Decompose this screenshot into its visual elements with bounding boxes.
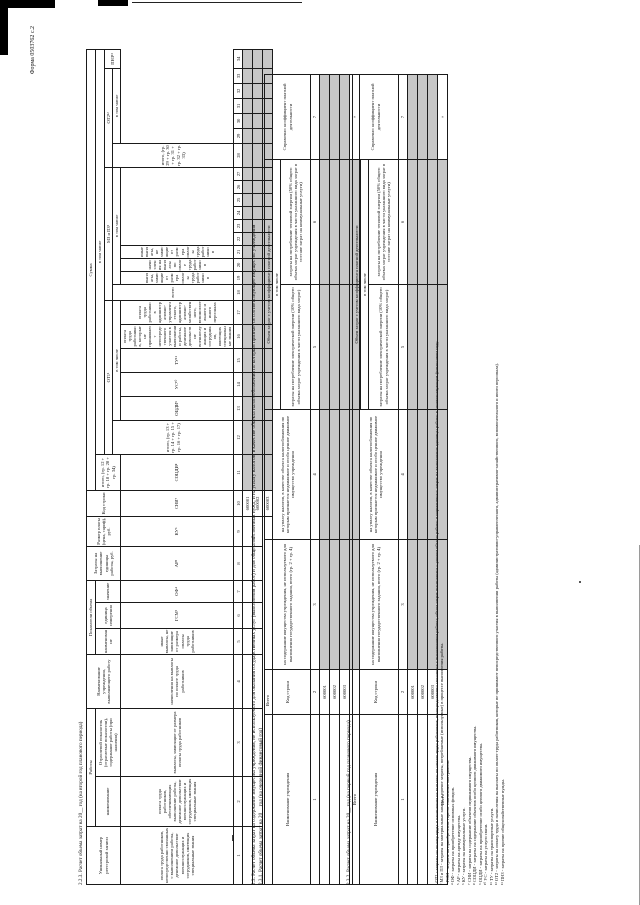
header-cell: Затраты на выполнение единицы работы, ру… <box>87 546 121 580</box>
footnote-line: ¹³ ПНЗ - затраты на прочие общехозяйстве… <box>500 40 505 885</box>
header-cell: на содержание имущества учреждения, не и… <box>265 540 311 670</box>
column-number: 9 <box>234 516 243 546</box>
header-cell: иные выплаты, не зависящие от размера оп… <box>121 628 234 654</box>
header-cell: ГСМ³ <box>121 602 234 628</box>
scan-edge-mark <box>0 0 8 55</box>
column-number: 7 <box>311 74 320 159</box>
header-cell: наименование <box>96 628 121 654</box>
header-group-ot2: ОТ2¹² <box>105 68 113 167</box>
form-sheet: Форма 0503762 с.2 2.2.3. Расчет объема з… <box>0 0 640 905</box>
header-cell: Уникальный номер реестровой записи <box>87 827 121 885</box>
row-tail <box>330 159 340 284</box>
column-number: 21 <box>234 245 243 258</box>
header-cell: оплата труда работников, обеспечивающих … <box>121 777 234 827</box>
row-tail <box>408 74 418 159</box>
header-cell: УС¹⁰ <box>121 372 234 396</box>
row-tail <box>408 285 418 410</box>
header-incl: в том числе <box>113 167 121 284</box>
header-cell: наименование <box>96 777 121 827</box>
header-cell: Наименование учреждения <box>353 715 399 885</box>
column-number: 1 <box>311 715 320 885</box>
row-tail <box>263 49 273 68</box>
row-tail <box>408 540 418 670</box>
header-cell: Код строки <box>353 670 399 715</box>
column-number: 32 <box>234 83 243 98</box>
row-tail <box>330 540 340 670</box>
row-tail <box>320 410 330 540</box>
column-number: 25 <box>234 193 243 206</box>
column-number: 33 <box>234 68 243 83</box>
column-number: 22 <box>234 232 243 245</box>
row-tail <box>320 540 330 670</box>
scan-edge-mark <box>132 2 302 4</box>
column-number: 28 <box>234 143 243 167</box>
header-cell: КУ⁶ <box>121 516 234 546</box>
column-number: 3 <box>311 540 320 670</box>
header-cell: Код строки <box>265 670 311 715</box>
header-cell: СНИ⁷ <box>121 490 234 516</box>
header-group-works: Работы <box>87 708 96 826</box>
column-number: 12 <box>234 420 243 454</box>
header-cell: ОЦДИ⁹ <box>121 396 234 420</box>
header-cell: затраты на потребление тепловой энергии … <box>369 159 399 284</box>
row-tail <box>418 74 428 159</box>
column-number: 24 <box>234 206 243 219</box>
column-number: 4 <box>311 410 320 540</box>
header-cell: АР⁵ <box>121 546 234 580</box>
column-number: 20 <box>234 258 243 271</box>
column-number: 19 <box>234 271 243 284</box>
column-number: 30 <box>234 113 243 128</box>
row-tail <box>418 410 428 540</box>
header-cell: Наименование учреждения <box>265 715 311 885</box>
header-cell: оплата труда работников, непосредственно… <box>121 827 234 885</box>
column-number: 8 <box>234 546 243 580</box>
column-number: 6 <box>399 159 408 284</box>
header-cell: оплата труда работников, которые не прин… <box>121 324 234 348</box>
row-start <box>418 715 428 885</box>
header-group-sum: Сумма <box>87 49 96 490</box>
column-number: 23 <box>234 219 243 232</box>
column-number: 2 <box>399 670 408 715</box>
column-number: 17 <box>234 300 243 324</box>
column-number: 31 <box>234 98 243 113</box>
column-number: 7 <box>399 74 408 159</box>
column-number: 10 <box>234 490 243 516</box>
header-cell: оплата труда работников административно-… <box>121 300 234 324</box>
header-group-mzpz: МЗ и ПЗ² <box>105 167 113 300</box>
column-number: 16 <box>234 324 243 348</box>
header-cell: ОФ⁴ <box>121 580 234 602</box>
column-number: 2 <box>234 777 243 827</box>
row-tail <box>330 74 340 159</box>
column-number: 7 <box>234 580 243 602</box>
column-number: 14 <box>234 372 243 396</box>
column-number: 29 <box>234 128 243 143</box>
header-cell: Наименование учреждения, выполняющего ра… <box>87 654 121 708</box>
header-cell: всего <box>113 284 234 300</box>
row-tail <box>320 159 330 284</box>
header-cell: итого, (гр. 12 + гр. 18 + гр. 28 + гр. 3… <box>96 454 121 490</box>
header-cell: единица измерения <box>96 602 121 628</box>
header-cell: на уплату налогов, в качестве объекта на… <box>265 410 311 540</box>
footnotes: ¹ ОТ1 - затраты на оплату труда и начисл… <box>434 25 505 885</box>
header-cell: Размер платы (цена, тариф), руб. <box>87 516 121 546</box>
header-cell: Справочно: коэффициент платной деятельно… <box>353 74 399 159</box>
row-start <box>408 715 418 885</box>
column-number: 1 <box>399 715 408 885</box>
header-cell: Код строки <box>87 490 121 516</box>
scan-smudge <box>579 581 581 583</box>
row-start <box>320 715 330 885</box>
header-cell: затраты на потребление тепловой энергии … <box>281 159 311 284</box>
header-cell: иные выплаты, не зависящие от размера оп… <box>121 245 234 258</box>
row-tail <box>418 159 428 284</box>
header-cell: ТУ¹¹ <box>121 348 234 372</box>
header-cell: затраты на потребление электрической эне… <box>281 285 311 410</box>
row-tail <box>418 285 428 410</box>
column-number: 4 <box>234 654 243 708</box>
row-tail <box>330 410 340 540</box>
header-group-ot1: ОТ1¹ <box>105 300 113 454</box>
header-incl: в том числе <box>113 300 121 420</box>
column-number: 15 <box>234 348 243 372</box>
column-number: 11 <box>234 454 243 490</box>
column-number: 27 <box>234 167 243 180</box>
scanned-page: Форма 0503762 с.2 2.2.3. Расчет объема з… <box>0 0 640 905</box>
header-incl: в том числе <box>361 159 369 409</box>
header-cell: затраты на потребление электрической эне… <box>369 285 399 410</box>
row-tail <box>408 159 418 284</box>
header-cell: значение <box>96 580 121 602</box>
column-number: 3 <box>399 540 408 670</box>
column-number: 6 <box>234 602 243 628</box>
scan-edge-mark <box>0 0 55 8</box>
column-number: 2 <box>311 670 320 715</box>
header-group-paid-activity: Объем затрат с учетом коэффициента платн… <box>353 159 361 409</box>
column-number: 5 <box>399 285 408 410</box>
row-code: 600001 <box>408 670 418 715</box>
header-cell: начисления на выплаты по оплате труда ра… <box>121 258 234 271</box>
header-cell: ПНЗ¹³ <box>105 49 121 68</box>
column-number: 6 <box>311 159 320 284</box>
header-cell: СОЦДИ⁸ <box>121 454 234 490</box>
column-number: 26 <box>234 180 243 193</box>
column-number: 3 <box>234 708 243 776</box>
header-cell: итого, (гр. 13 + гр. 14 + гр. 15 + гр. 1… <box>113 420 234 454</box>
row-tail <box>330 285 340 410</box>
header-cell: на уплату налогов, в качестве объекта на… <box>353 410 399 540</box>
column-number: 34 <box>234 49 243 68</box>
row-start <box>330 715 340 885</box>
header-incl: в том числе <box>113 68 121 143</box>
header-group-paid-activity: Объем затрат с учетом коэффициента платн… <box>265 159 273 409</box>
column-number: 18 <box>234 284 243 300</box>
section-2-2-3-title: 2.2.3. Расчет объема затрат на 20__ год … <box>78 50 84 885</box>
header-cell: начисления на выплаты по оплате труда ра… <box>121 654 234 708</box>
row-tail <box>320 74 330 159</box>
column-number: 5 <box>311 285 320 410</box>
row-tail <box>320 285 330 410</box>
header-group-volume: Показатели объема <box>87 580 96 654</box>
column-number: 5 <box>234 628 243 654</box>
header-cell: итого, (гр. 29 + гр. 30 + гр. 31 + гр. 3… <box>113 143 234 167</box>
header-cell: на содержание имущества учреждения, не и… <box>353 540 399 670</box>
column-number: 4 <box>399 410 408 540</box>
header-cell: выплаты, зависящие от размера оплаты тру… <box>121 271 234 284</box>
header-cell: выплаты, зависящие от размера оплаты тру… <box>121 708 234 776</box>
header-cell: Отраслевой показатель (отраслевые показа… <box>96 708 121 776</box>
form-code: Форма 0503762 с.2 <box>30 26 36 74</box>
scan-edge-mark <box>98 0 128 6</box>
row-code: 600002 <box>330 670 340 715</box>
row-tail <box>408 410 418 540</box>
work-costs-table: Уникальный номер реестровой записи Работ… <box>86 49 273 885</box>
column-number: 1 <box>234 827 243 885</box>
header-incl: в том числе <box>96 49 105 454</box>
header-cell: Справочно: коэффициент платной деятельно… <box>265 74 311 159</box>
row-tail <box>418 540 428 670</box>
column-number: 13 <box>234 396 243 420</box>
row-code: 600002 <box>418 670 428 715</box>
row-code: 600001 <box>320 670 330 715</box>
header-incl: в том числе <box>273 159 281 409</box>
section-2-3-title: 2.3. Расчет объема затрат на содержание … <box>251 50 257 885</box>
